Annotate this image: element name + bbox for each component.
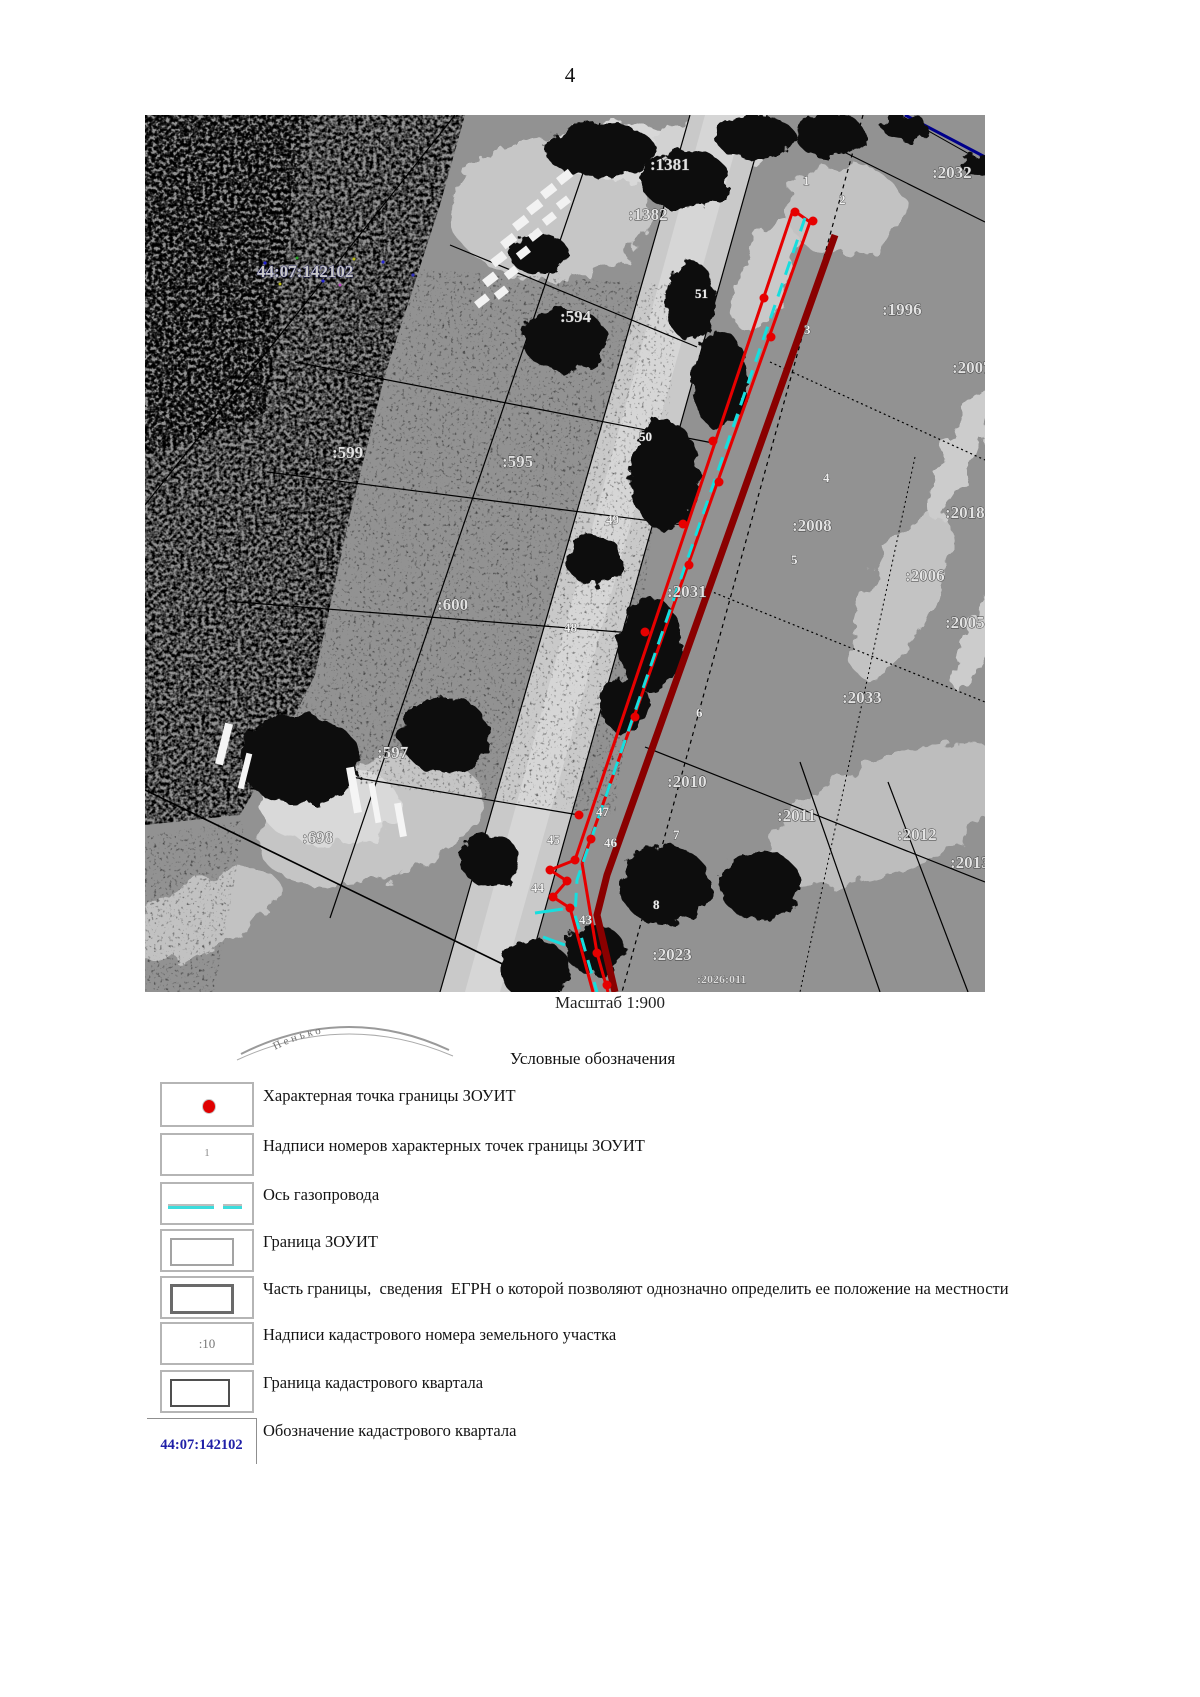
cyan-dash-icon	[168, 1206, 214, 1209]
parcel-label: :2018	[945, 503, 985, 522]
point-label: 2	[839, 192, 846, 207]
swatch-zouit-point	[160, 1082, 254, 1127]
legend-label: Часть границы, сведения ЕГРН о которой п…	[263, 1279, 1188, 1300]
parcel-label: :2005	[945, 613, 985, 632]
parcel-label: :2012	[897, 825, 937, 844]
swatch-parcel-number: :10	[160, 1322, 254, 1365]
parcel-label: :2008	[792, 516, 832, 535]
parcel-label: :2010	[667, 772, 707, 791]
parcel-label: :600	[437, 595, 468, 614]
quarter-label-text: 44:07:142102	[257, 262, 353, 281]
point-label: 1	[803, 173, 810, 188]
legend-title: Условные обозначения	[145, 1049, 1040, 1069]
swatch-point-number: 1	[160, 1133, 254, 1176]
point-label: 5	[791, 552, 798, 567]
swatch-zouit-boundary	[160, 1229, 254, 1272]
point-label: 44	[531, 880, 545, 895]
legend-label: Граница кадастрового квартала	[263, 1373, 1188, 1394]
swatch-quarter-designation: 44:07:142102	[147, 1418, 257, 1464]
point-label: 50	[639, 429, 652, 444]
legend-label: Обозначение кадастрового квартала	[263, 1421, 1188, 1442]
legend-label: Ось газопровода	[263, 1185, 1188, 1206]
point-number-icon: 1	[162, 1147, 252, 1159]
document-page: 4	[0, 0, 1200, 1697]
red-point-icon	[203, 1100, 215, 1113]
parcel-label: :2011	[777, 806, 816, 825]
point-label: 46	[604, 835, 618, 850]
quarter-designation-text: 44:07:142102	[147, 1437, 256, 1454]
parcel-label: :1381	[650, 155, 690, 174]
cyan-dash-icon	[223, 1206, 242, 1209]
page-number: 4	[0, 63, 1140, 88]
point-label: 4	[823, 470, 830, 485]
point-label: 48	[564, 620, 578, 635]
boundary-rect-icon	[170, 1379, 230, 1407]
parcel-number-icon: :10	[162, 1336, 252, 1352]
point-label: 8	[653, 897, 660, 912]
legend-label: Надписи номеров характерных точек границ…	[263, 1136, 1188, 1157]
map-svg: 44:07:142102 :1381 :1382 :2032 :594 :199…	[145, 115, 985, 992]
parcel-label: :2013	[950, 853, 985, 872]
legend-label: Надписи кадастрового номера земельного у…	[263, 1325, 1188, 1346]
parcel-label: :2007	[952, 358, 985, 377]
swatch-quarter-boundary	[160, 1370, 254, 1413]
legend-label: Характерная точка границы ЗОУИТ	[263, 1086, 1188, 1107]
parcel-label: :1996	[882, 300, 922, 319]
parcel-label: :594	[560, 307, 592, 326]
legend-label: Граница ЗОУИТ	[263, 1232, 1188, 1253]
parcel-label: :597	[377, 743, 409, 762]
point-label: 51	[695, 286, 708, 301]
point-label: 47	[596, 804, 610, 819]
parcel-label: :599	[332, 443, 363, 462]
point-label: 7	[673, 827, 680, 842]
parcel-label: :595	[502, 452, 533, 471]
parcel-label: :2006	[905, 566, 945, 585]
boundary-rect-icon	[170, 1284, 234, 1314]
swatch-egrn-part	[160, 1276, 254, 1319]
point-label: 45	[547, 832, 561, 847]
point-label: 6	[696, 705, 703, 720]
parcel-label: :2026:011	[697, 972, 746, 986]
parcel-label: :2032	[932, 163, 972, 182]
parcel-label: :2031	[667, 582, 707, 601]
cadastral-map-image: 44:07:142102 :1381 :1382 :2032 :594 :199…	[145, 115, 985, 992]
swatch-gas-axis	[160, 1182, 254, 1225]
point-label: 49	[606, 512, 620, 527]
point-label: 3	[804, 322, 811, 337]
parcel-label: :1382	[628, 205, 668, 224]
boundary-rect-icon	[170, 1238, 234, 1266]
point-label: 43	[579, 912, 593, 927]
parcel-label: :2023	[652, 945, 692, 964]
parcel-label: :698	[302, 828, 333, 847]
parcel-label: :2033	[842, 688, 882, 707]
